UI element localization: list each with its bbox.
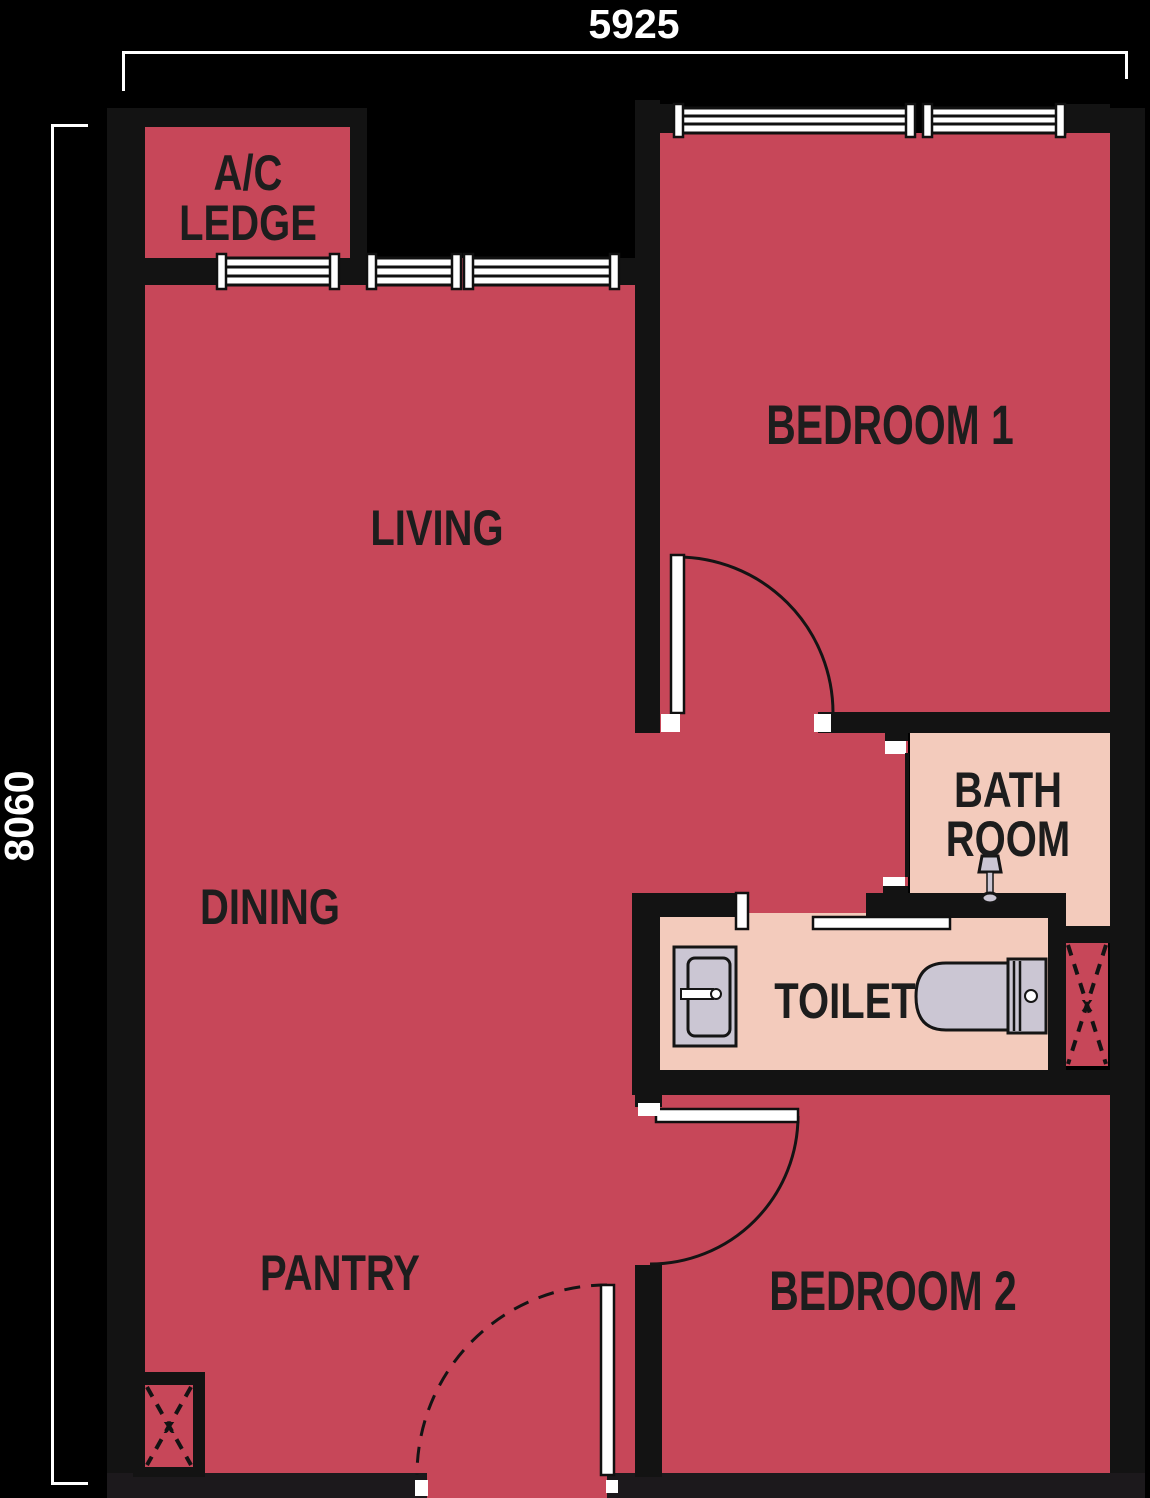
wc-bowl bbox=[916, 963, 1008, 1030]
dimension-line bbox=[51, 124, 54, 1485]
wall-toilet-left bbox=[632, 893, 660, 1095]
bedroom1-label: BEDROOM 1 bbox=[766, 395, 1014, 457]
window-end-cap bbox=[1056, 104, 1065, 137]
bedroom1-door-leaf bbox=[671, 555, 684, 713]
living-window-3 bbox=[467, 258, 617, 285]
duct-marker: x bbox=[1081, 994, 1092, 1016]
bedroom1-window-2 bbox=[928, 108, 1065, 133]
window-end-cap bbox=[610, 254, 619, 289]
wall-bedroom1-left bbox=[635, 100, 660, 733]
entrance-door-leaf bbox=[601, 1285, 614, 1475]
toilet-sliding-door-panel bbox=[813, 917, 950, 929]
dimension-tick bbox=[1125, 51, 1128, 79]
wall-ac-ledge-right bbox=[350, 108, 367, 283]
entrance-door-stop-right bbox=[606, 1480, 618, 1493]
wall-toilet-top-right bbox=[866, 893, 1066, 918]
wall-living-window-pier1 bbox=[337, 258, 370, 285]
dimension-height-value: 8060 bbox=[0, 770, 42, 861]
ac-ledge-label-line1: A/C bbox=[214, 145, 283, 201]
toilet-door-jamb bbox=[736, 893, 748, 929]
dimension-line bbox=[122, 51, 1128, 54]
duct-right: x bbox=[1066, 943, 1108, 1066]
window-end-cap bbox=[452, 254, 461, 289]
dining-label: DINING bbox=[200, 879, 340, 935]
wall-left-outer bbox=[107, 108, 145, 1498]
duct-marker: x bbox=[163, 1416, 174, 1438]
living-windows bbox=[217, 254, 619, 289]
bathroom-partition-cap-bottom bbox=[883, 877, 905, 886]
wall-toilet-bottom bbox=[632, 1070, 1145, 1095]
wall-bathroom-top bbox=[818, 712, 1145, 733]
floor-plan: x x 5925 8060 A/C LEDGE LIVING DINING PA… bbox=[0, 0, 1150, 1498]
pantry-label: PANTRY bbox=[260, 1245, 420, 1301]
wall-bottom-right bbox=[607, 1473, 1145, 1498]
wall-right-outer bbox=[1110, 108, 1145, 1498]
wall-ac-ledge-top bbox=[107, 108, 367, 127]
wall-living-window-band-a bbox=[145, 258, 220, 285]
bathroom-partition-stub-bottom bbox=[883, 886, 908, 893]
bedroom1-door-stop-left bbox=[661, 714, 680, 732]
window-end-cap bbox=[367, 254, 376, 289]
dimension-tick bbox=[122, 51, 125, 91]
bathroom-floor-notch bbox=[1066, 893, 1110, 926]
sink-faucet bbox=[681, 989, 713, 999]
shower-tap-base bbox=[982, 893, 998, 903]
bedroom2-door-stop bbox=[638, 1103, 660, 1116]
shower-tap-stem bbox=[987, 872, 993, 894]
window-end-cap bbox=[923, 104, 932, 137]
bedroom1-windows bbox=[674, 104, 1065, 137]
dimension-left: 8060 bbox=[0, 124, 88, 1485]
bathroom-partition-cap-top bbox=[885, 741, 906, 754]
wc-flush-button bbox=[1025, 990, 1037, 1002]
bathroom-partition-line bbox=[905, 753, 909, 877]
window-end-cap bbox=[906, 104, 915, 137]
entrance-door-stop-left bbox=[415, 1480, 428, 1496]
ac-ledge-label-line2: LEDGE bbox=[179, 195, 317, 251]
bathroom-partition-stub-top bbox=[885, 723, 908, 741]
dimension-top: 5925 bbox=[122, 1, 1128, 91]
wall-duct-cap bbox=[1055, 926, 1118, 943]
living-window-1 bbox=[220, 258, 337, 285]
corridor-floor bbox=[635, 712, 908, 914]
dimension-width-value: 5925 bbox=[588, 1, 679, 47]
dimension-tick bbox=[51, 1482, 88, 1485]
bedroom1-window-1 bbox=[677, 108, 913, 133]
window-end-cap bbox=[674, 104, 683, 137]
duct-bottom-left: x bbox=[133, 1372, 205, 1477]
floor-plan-canvas: x x 5925 8060 A/C LEDGE LIVING DINING PA… bbox=[0, 0, 1150, 1498]
bathroom-label-line1: BATH bbox=[954, 762, 1062, 818]
window-end-cap bbox=[330, 254, 339, 289]
sink-faucet-knob bbox=[711, 989, 721, 999]
bedroom2-label: BEDROOM 2 bbox=[769, 1261, 1017, 1323]
entrance-opening bbox=[427, 1473, 607, 1498]
bedroom1-door-stop-right bbox=[814, 714, 831, 732]
window-end-cap bbox=[464, 254, 473, 289]
window-end-cap bbox=[217, 254, 226, 289]
living-label: LIVING bbox=[370, 500, 503, 556]
living-window-2 bbox=[370, 258, 460, 285]
bathroom-label-line2: ROOM bbox=[946, 811, 1070, 867]
dimension-tick bbox=[51, 124, 88, 127]
wall-toilet-top-left bbox=[650, 893, 738, 917]
wall-bedroom2-left bbox=[635, 1265, 662, 1477]
bedroom2-door-leaf bbox=[656, 1109, 798, 1122]
toilet-label: TOILET bbox=[774, 973, 916, 1029]
